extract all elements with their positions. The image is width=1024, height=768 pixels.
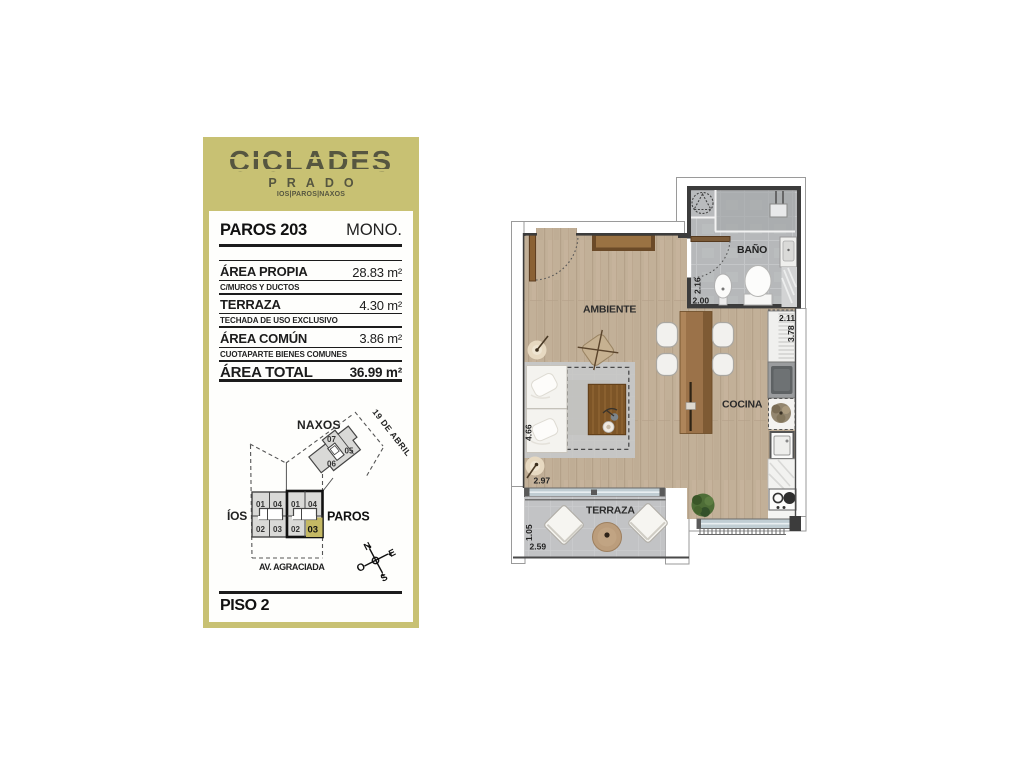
svg-text:1.05: 1.05: [524, 524, 534, 541]
svg-text:AMBIENTE: AMBIENTE: [583, 304, 636, 316]
svg-text:05: 05: [345, 447, 354, 456]
svg-text:NAXOS: NAXOS: [297, 418, 341, 432]
svg-text:04: 04: [308, 500, 317, 509]
svg-text:BAÑO: BAÑO: [737, 243, 767, 256]
svg-text:TERRAZA: TERRAZA: [586, 505, 635, 517]
svg-text:02: 02: [256, 525, 265, 534]
svg-text:07: 07: [327, 435, 336, 444]
svg-text:3.78: 3.78: [786, 325, 796, 342]
svg-text:03: 03: [273, 525, 282, 534]
svg-text:2.11: 2.11: [779, 313, 795, 323]
svg-text:2.59: 2.59: [530, 542, 547, 552]
svg-text:ÍOS: ÍOS: [227, 508, 247, 523]
svg-text:2.97: 2.97: [534, 476, 551, 486]
svg-text:03: 03: [308, 525, 319, 536]
svg-text:S: S: [379, 572, 390, 585]
svg-text:01: 01: [291, 500, 300, 509]
svg-text:PAROS: PAROS: [327, 510, 370, 524]
svg-text:2.00: 2.00: [693, 296, 710, 306]
svg-text:AV. AGRACIADA: AV. AGRACIADA: [259, 562, 325, 572]
svg-text:04: 04: [273, 500, 282, 509]
svg-text:01: 01: [256, 500, 265, 509]
svg-text:2.16: 2.16: [693, 277, 703, 294]
svg-text:COCINA: COCINA: [722, 399, 763, 411]
svg-text:4.66: 4.66: [524, 424, 534, 441]
svg-text:O: O: [355, 561, 368, 575]
svg-text:E: E: [387, 547, 398, 560]
svg-text:19 DE ABRIL: 19 DE ABRIL: [370, 407, 413, 458]
svg-text:N: N: [362, 540, 373, 553]
svg-text:06: 06: [327, 460, 336, 469]
svg-text:02: 02: [291, 525, 300, 534]
